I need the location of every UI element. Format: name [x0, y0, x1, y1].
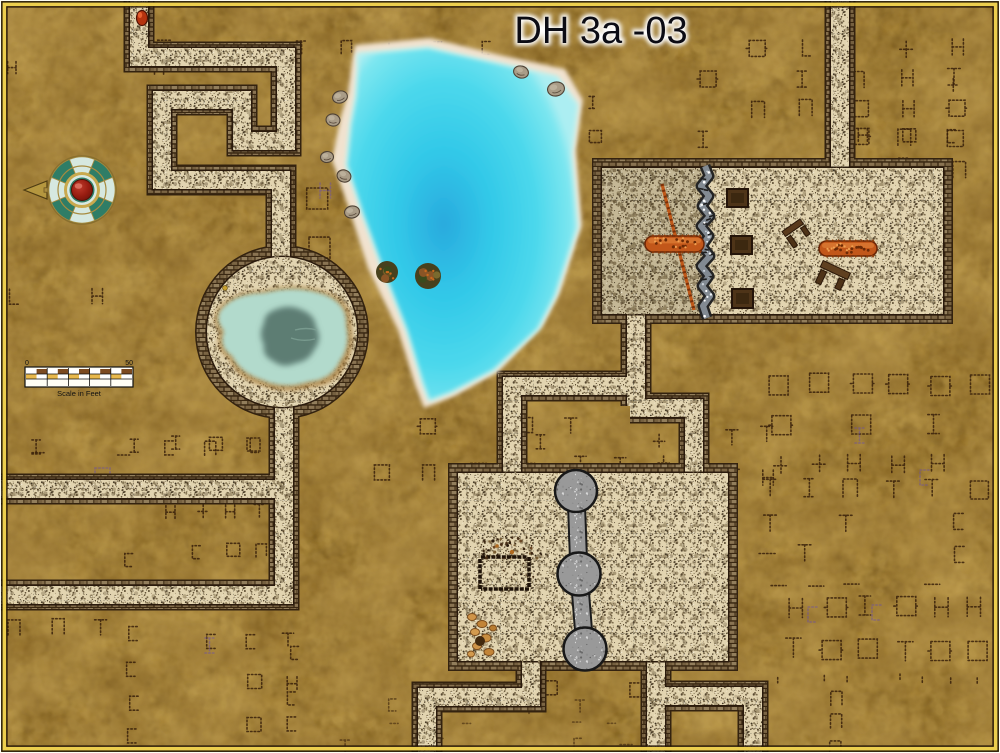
- svg-text:Scale in Feet: Scale in Feet: [57, 389, 102, 398]
- svg-text:0: 0: [25, 360, 29, 367]
- svg-text:DH 3a -03: DH 3a -03: [514, 10, 687, 52]
- svg-text:50: 50: [125, 360, 133, 367]
